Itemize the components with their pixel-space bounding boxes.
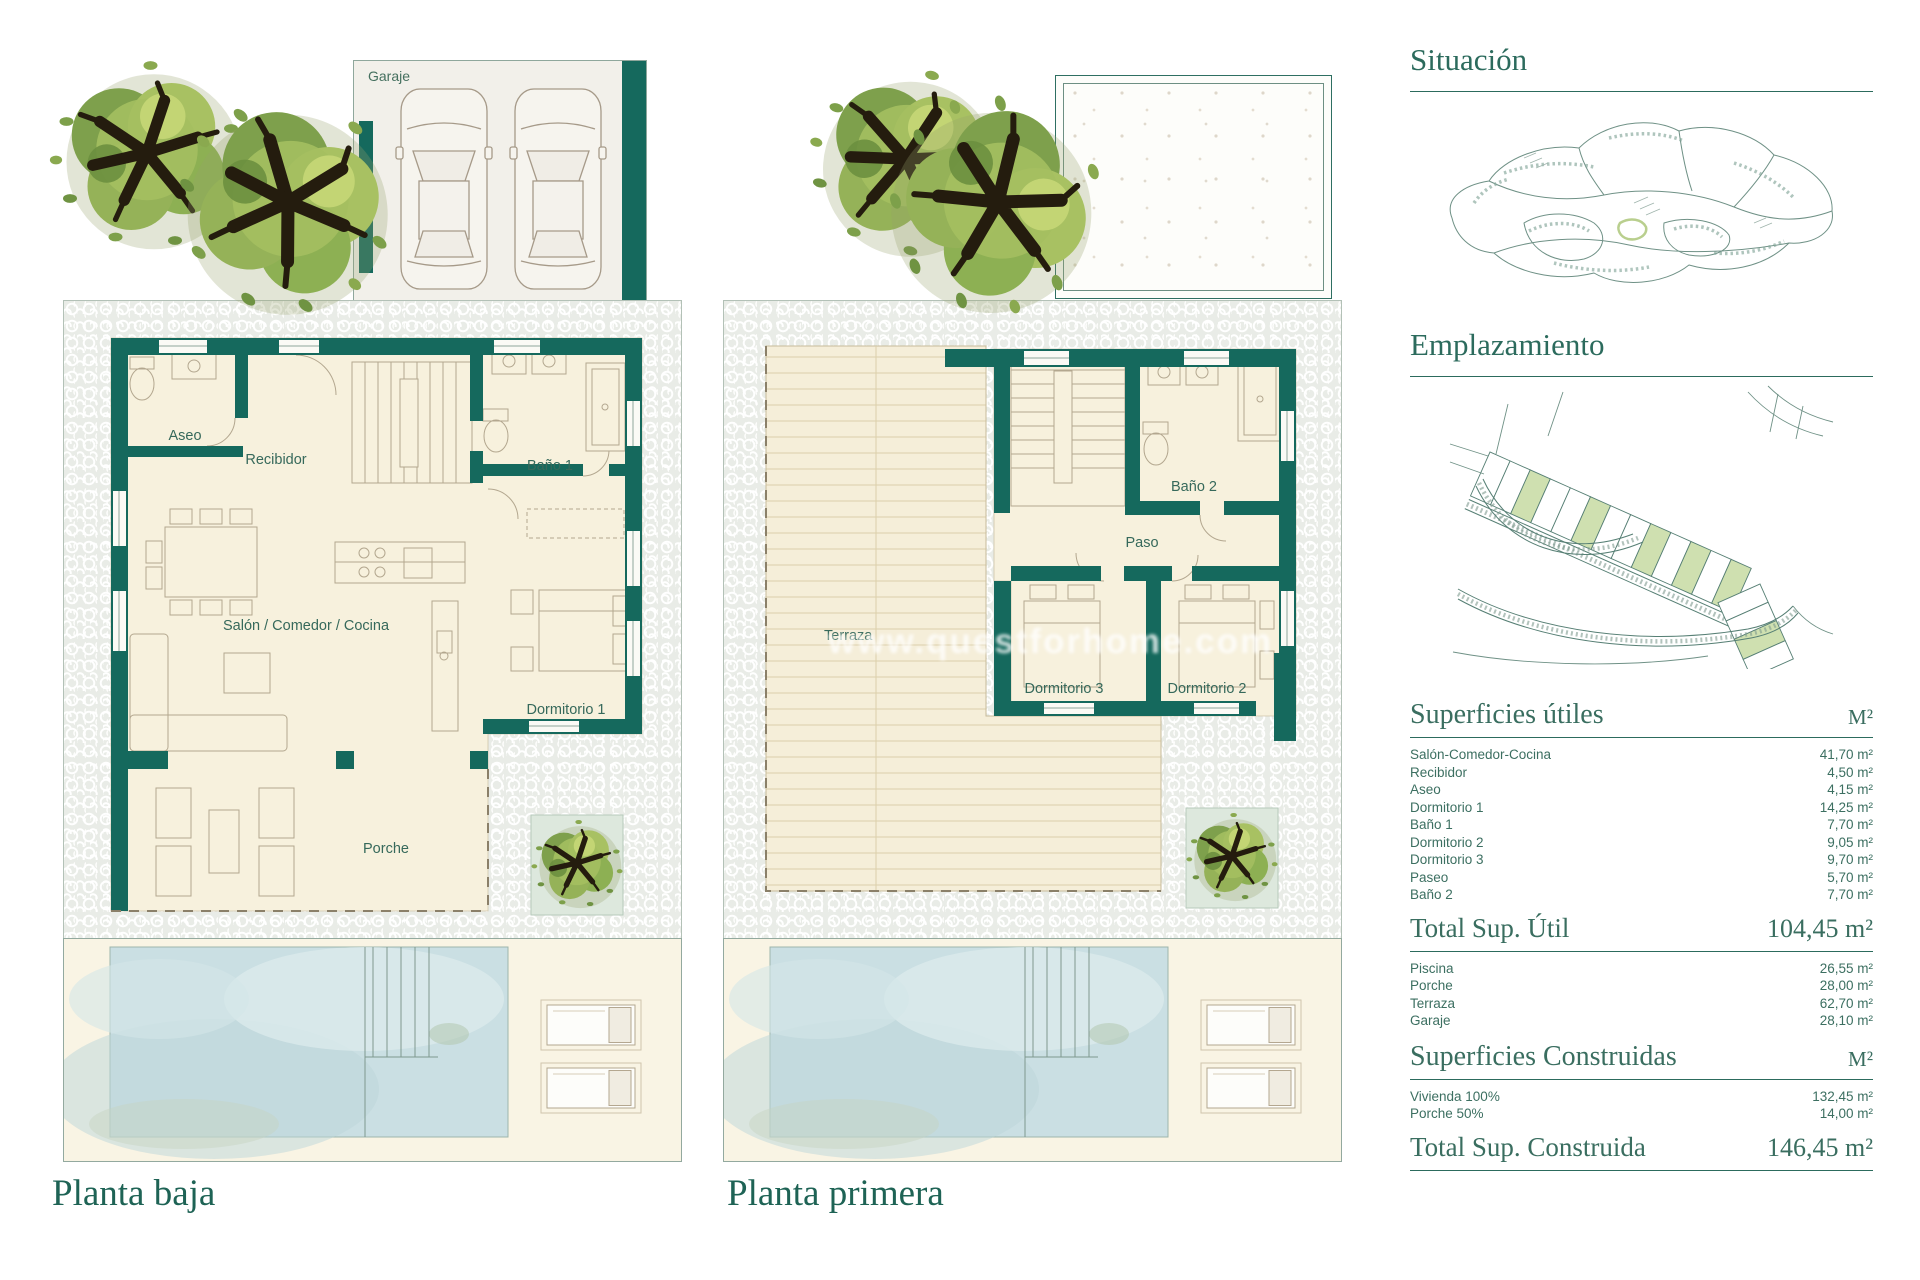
room-label-porche: Porche (363, 841, 409, 857)
bush-icon (1186, 808, 1278, 908)
table-row: Dormitorio 114,25 m² (1410, 799, 1873, 817)
room-label-bano1: Baño 1 (527, 458, 573, 474)
room-label-aseo: Aseo (168, 428, 201, 444)
room-label-bano2: Baño 2 (1171, 479, 1217, 495)
table-row: Dormitorio 39,70 m² (1410, 851, 1873, 869)
planta-primera-floorplan: Terraza Baño 2 Paso Dormitorio 3 Dormito… (724, 301, 1341, 939)
caption-planta-baja: Planta baja (52, 1172, 215, 1215)
situacion-title: Situación (1410, 42, 1527, 78)
emplazamiento-title: Emplazamiento (1410, 327, 1605, 363)
table-row: Recibidor4,50 m² (1410, 764, 1873, 782)
planta-primera-pool-area (723, 938, 1342, 1162)
table-row: Porche 50%14,00 m² (1410, 1105, 1873, 1123)
planta-baja-pool-area (63, 938, 682, 1162)
room-label-salon: Salón / Comedor / Cocina (223, 618, 390, 634)
table-row: Salón-Comedor-Cocina41,70 m² (1410, 746, 1873, 764)
planta-baja-plot: Aseo Recibidor Baño 1 Salón / Comedor / … (63, 300, 682, 940)
emplazamiento-rule (1410, 376, 1873, 377)
car-icon (510, 89, 606, 289)
garage-wall (622, 61, 646, 301)
planta-primera-plot: Terraza Baño 2 Paso Dormitorio 3 Dormito… (723, 300, 1342, 940)
room-label-dormitorio3: Dormitorio 3 (1025, 681, 1104, 697)
util-unit: M² (1848, 705, 1873, 730)
construidas-title: Superficies Construidas (1410, 1042, 1677, 1072)
outdoor-rows: Piscina26,55 m² Porche28,00 m² Terraza62… (1410, 960, 1873, 1030)
situacion-rule (1410, 91, 1873, 92)
table-row: Baño 27,70 m² (1410, 886, 1873, 904)
table-row: Terraza62,70 m² (1410, 995, 1873, 1013)
construidas-unit: M² (1848, 1047, 1873, 1072)
table-row: Aseo4,15 m² (1410, 781, 1873, 799)
sun-lounger-icon (541, 1000, 641, 1050)
trees-left (30, 30, 450, 360)
total-util-row: Total Sup. Útil 104,45 m² (1410, 904, 1873, 952)
util-header: Superficies útiles M² (1410, 700, 1873, 738)
caption-planta-primera: Planta primera (727, 1172, 944, 1215)
pool-drawing (724, 939, 1341, 1161)
table-row: Garaje28,10 m² (1410, 1012, 1873, 1030)
planta-baja-floorplan: Aseo Recibidor Baño 1 Salón / Comedor / … (64, 301, 681, 939)
bush-icon (531, 815, 623, 915)
brochure-page: Garaje (0, 0, 1920, 1280)
room-label-dormitorio1: Dormitorio 1 (527, 702, 606, 718)
table-row: Dormitorio 29,05 m² (1410, 834, 1873, 852)
table-row: Vivienda 100%132,45 m² (1410, 1088, 1873, 1106)
table-row: Baño 17,70 m² (1410, 816, 1873, 834)
sun-lounger-icon (1201, 1063, 1301, 1113)
room-label-paso: Paso (1125, 535, 1158, 551)
construidas-rows: Vivienda 100%132,45 m² Porche 50%14,00 m… (1410, 1080, 1873, 1123)
construidas-header: Superficies Construidas M² (1410, 1042, 1873, 1080)
areas-table: Superficies útiles M² Salón-Comedor-Coci… (1410, 700, 1873, 1171)
trees-middle (810, 40, 1230, 370)
util-title: Superficies útiles (1410, 700, 1604, 730)
table-row: Piscina26,55 m² (1410, 960, 1873, 978)
situacion-map (1434, 103, 1844, 313)
room-label-recibidor: Recibidor (245, 452, 306, 468)
util-rows: Salón-Comedor-Cocina41,70 m² Recibidor4,… (1410, 738, 1873, 904)
table-row: Paseo5,70 m² (1410, 869, 1873, 887)
pool-drawing (64, 939, 681, 1161)
total-construida-row: Total Sup. Construida 146,45 m² (1410, 1123, 1873, 1171)
sun-lounger-icon (541, 1063, 641, 1113)
watermark: www.questforhome.com (828, 622, 1273, 662)
table-row: Porche28,00 m² (1410, 977, 1873, 995)
sun-lounger-icon (1201, 1000, 1301, 1050)
highlighted-area (1618, 220, 1646, 240)
emplazamiento-map (1448, 384, 1838, 669)
room-label-dormitorio2: Dormitorio 2 (1168, 681, 1247, 697)
